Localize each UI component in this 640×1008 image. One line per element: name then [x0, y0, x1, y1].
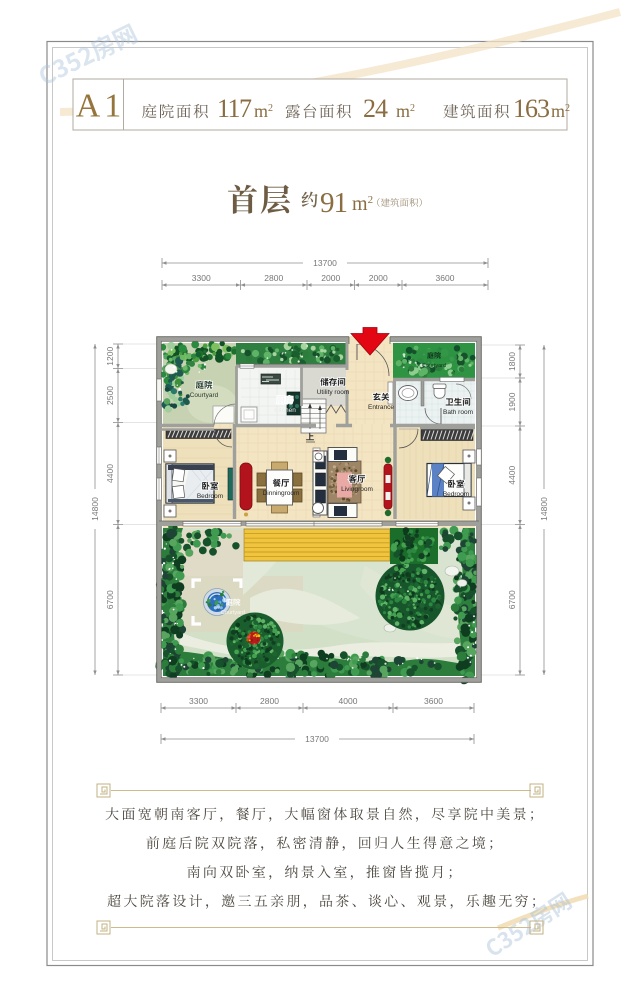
svg-text:13700: 13700 — [305, 734, 329, 744]
svg-text:3300: 3300 — [192, 273, 211, 283]
svg-text:4000: 4000 — [339, 696, 358, 706]
svg-text:3600: 3600 — [436, 273, 455, 283]
svg-text:Courtyard: Courtyard — [190, 392, 219, 399]
svg-text:Entrance: Entrance — [368, 404, 394, 411]
svg-text:117: 117 — [217, 94, 252, 123]
svg-text:4400: 4400 — [507, 466, 517, 485]
svg-text:2800: 2800 — [260, 696, 279, 706]
svg-text:m2: m2 — [352, 193, 373, 215]
svg-text:4400: 4400 — [105, 464, 115, 483]
svg-text:A1: A1 — [76, 88, 126, 125]
svg-text:3300: 3300 — [189, 696, 208, 706]
svg-text:2000: 2000 — [321, 273, 340, 283]
svg-text:Courtyard: Courtyard — [422, 363, 446, 369]
svg-text:24: 24 — [363, 94, 388, 123]
svg-text:Kitchen: Kitchen — [274, 407, 296, 414]
svg-text:Livingroom: Livingroom — [341, 486, 373, 493]
svg-text:14800: 14800 — [539, 497, 549, 521]
svg-text:2000: 2000 — [369, 273, 388, 283]
svg-text:Bath room: Bath room — [443, 409, 473, 416]
svg-text:6700: 6700 — [507, 590, 517, 609]
svg-text:163: 163 — [513, 94, 549, 123]
svg-text:Courtyard: Courtyard — [221, 610, 245, 616]
svg-text:6700: 6700 — [105, 590, 115, 609]
svg-text:14800: 14800 — [90, 497, 100, 521]
svg-text:Dinningroom: Dinningroom — [263, 490, 300, 497]
svg-text:1800: 1800 — [507, 352, 517, 371]
svg-text:3600: 3600 — [424, 696, 443, 706]
svg-text:1200: 1200 — [105, 347, 115, 366]
svg-text:2800: 2800 — [264, 273, 283, 283]
svg-text:13700: 13700 — [313, 258, 337, 268]
svg-text:2500: 2500 — [105, 386, 115, 405]
svg-text:Bedroom: Bedroom — [443, 491, 469, 498]
svg-text:Bedroom: Bedroom — [197, 493, 223, 500]
svg-text:91: 91 — [320, 187, 347, 219]
svg-text:Utility room: Utility room — [317, 389, 350, 396]
svg-text:1900: 1900 — [507, 392, 517, 411]
